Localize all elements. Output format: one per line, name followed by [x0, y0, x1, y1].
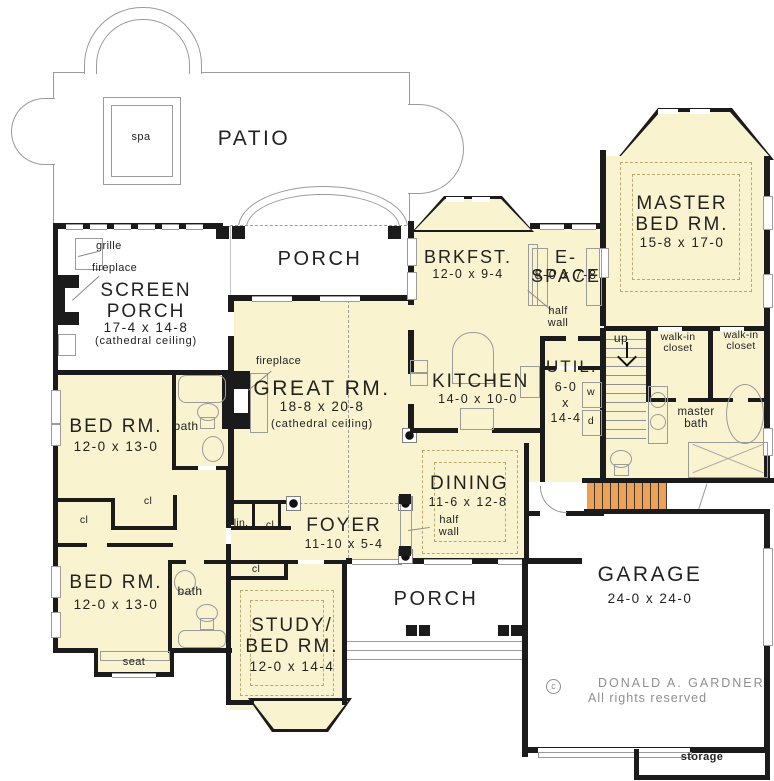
window — [763, 196, 773, 230]
tub — [178, 375, 226, 403]
wall — [173, 495, 177, 530]
kitchen-sink — [460, 408, 494, 430]
garage-floor — [524, 513, 770, 751]
front-door — [352, 559, 402, 565]
room-label-porch-upper: PORCH — [272, 249, 368, 271]
room-label-master-bed: MASTER BED RM. — [628, 194, 736, 235]
floor-plan: spa PATIO — [0, 0, 774, 781]
copyright-line2: All rights reserved — [588, 692, 738, 706]
sink — [650, 414, 666, 430]
label-fireplace-great: fireplace — [256, 356, 326, 368]
window — [498, 559, 522, 565]
label-grille: grille — [96, 241, 142, 253]
wall — [540, 338, 545, 482]
patio-arch-right — [408, 104, 464, 194]
basement-stairs — [587, 482, 667, 511]
door-opening — [198, 466, 216, 470]
window — [540, 224, 564, 230]
room-label-garage: GARAGE — [588, 564, 712, 587]
window — [407, 272, 417, 300]
wall — [584, 509, 770, 514]
porch-column — [232, 226, 245, 239]
window — [51, 612, 61, 638]
bay-window — [690, 109, 710, 114]
room-dims-foyer: 11-10 x 5-4 — [300, 538, 388, 552]
room-note-screen-porch: (cathedral ceiling) — [76, 336, 216, 348]
half-wall-cap — [399, 546, 411, 556]
room-label-porch-lower: PORCH — [388, 589, 484, 611]
screen-opening — [162, 224, 179, 230]
tub — [178, 630, 226, 648]
room-dims-kitchen: 14-0 x 10-0 — [432, 393, 524, 407]
room-dims-garage: 24-0 x 24-0 — [590, 592, 710, 607]
bay-window — [658, 109, 678, 114]
room-label-dining: DINING — [430, 474, 506, 495]
wall — [231, 500, 291, 504]
french-door — [320, 296, 360, 302]
brkfst-bay-fill — [415, 199, 531, 230]
label-bath-upper: bath — [166, 420, 206, 433]
wall — [522, 563, 528, 757]
wall — [168, 648, 232, 653]
room-dims-bed-rm-lower: 12-0 x 13-0 — [60, 598, 172, 613]
porch-column — [388, 226, 401, 239]
toilet-tank — [614, 464, 629, 476]
room-dims-util: 6-0 x 14-4 — [548, 380, 584, 427]
label-lin: lin. — [227, 518, 255, 529]
screen-opening — [114, 224, 131, 230]
wall — [228, 700, 254, 705]
label-up: up — [608, 332, 634, 345]
wall — [53, 648, 98, 653]
wall — [344, 700, 347, 705]
garage-door — [538, 752, 692, 758]
label-cl-4: cl — [244, 564, 268, 575]
room-dims-master-bed: 15-8 x 17-0 — [630, 236, 734, 251]
sink — [202, 436, 224, 462]
bay-window — [446, 197, 464, 202]
label-cl-1: cl — [72, 515, 96, 526]
wall — [410, 428, 458, 433]
window — [51, 566, 61, 598]
room-label-util: UTIL. — [546, 358, 594, 376]
wall — [111, 526, 177, 530]
toilet-tank — [200, 618, 214, 630]
spa-label: spa — [111, 132, 171, 144]
french-door — [252, 296, 292, 302]
wall — [524, 443, 529, 563]
label-dryer: d — [584, 416, 598, 427]
porch-column — [498, 625, 509, 636]
porch-column — [511, 625, 522, 636]
door-opening — [228, 312, 234, 336]
room-note-great-rm: (cathedral ceiling) — [262, 419, 382, 431]
window — [763, 274, 773, 308]
label-bath-lower: bath — [170, 585, 210, 598]
room-dims-bed-rm-upper: 12-0 x 13-0 — [60, 440, 172, 455]
porch-lower-step2 — [346, 650, 524, 660]
room-dims-brkfst: 12-0 x 9-4 — [422, 268, 514, 282]
porch-column — [406, 625, 417, 636]
room-label-screen-porch: SCREEN PORCH — [84, 281, 208, 322]
room-label-bed-rm-lower: BED RM. — [62, 573, 170, 594]
room-label-kitchen: KITCHEN — [432, 372, 524, 393]
room-dims-espace: 8-0 x 7-8 — [528, 269, 604, 283]
room-label-study: STUDY/ BED RM. — [240, 616, 344, 657]
study-bay-fill — [252, 701, 348, 729]
label-storage: storage — [672, 752, 732, 764]
label-seat: seat — [104, 657, 164, 669]
room-label-walk-in-closet-1: walk-in closet — [648, 332, 708, 355]
room-label-great-rm: GREAT RM. — [250, 378, 394, 401]
half-wall-cap — [399, 494, 411, 504]
window — [763, 548, 773, 646]
wall — [57, 498, 115, 502]
wall — [57, 543, 87, 547]
wall — [688, 398, 712, 402]
window — [424, 559, 472, 565]
room-dims-dining: 11-6 x 12-8 — [428, 496, 508, 510]
window — [572, 224, 596, 230]
bay-window — [472, 197, 490, 202]
porch-column — [419, 625, 430, 636]
wall — [634, 775, 770, 780]
patio-label: PATIO — [208, 128, 300, 151]
label-cl-3: cl — [258, 520, 282, 531]
tub — [726, 384, 764, 444]
master-bay-fill — [620, 112, 770, 157]
wall — [540, 336, 566, 341]
room-label-master-bath: master bath — [666, 406, 726, 431]
label-half-wall-espace: half wall — [538, 306, 578, 330]
door-opening — [298, 560, 324, 564]
label-washer: w — [584, 387, 598, 398]
room-dims-great-rm: 18-8 x 20-8 — [260, 400, 384, 415]
column — [286, 496, 301, 511]
wall — [284, 562, 288, 580]
room-dims-study: 12-0 x 14-4 — [238, 660, 346, 675]
screen-opening — [66, 224, 83, 230]
screen-opening — [90, 224, 107, 230]
wall — [107, 543, 173, 547]
copyright-symbol: c — [546, 679, 561, 694]
wall — [582, 478, 774, 483]
window — [112, 673, 156, 678]
wall — [230, 576, 286, 580]
room-label-brkfst: BRKFST. — [424, 248, 512, 267]
patio-arch-left — [11, 98, 55, 165]
label-cl-2: cl — [136, 496, 160, 507]
stair-landing-right — [667, 482, 765, 512]
room-label-walk-in-closet-2: walk-in closet — [712, 330, 770, 353]
screen-opening — [138, 224, 155, 230]
window — [51, 390, 61, 424]
firebox — [234, 389, 248, 413]
room-dims-screen-porch: 17-4 x 14-8 — [82, 321, 210, 336]
porch-column — [216, 226, 229, 239]
door-opening — [226, 528, 231, 544]
label-fireplace-screen: fireplace — [92, 263, 156, 275]
bench — [58, 334, 76, 356]
wall — [492, 428, 540, 433]
screen-opening — [186, 224, 203, 230]
label-half-wall-dining: half wall — [428, 515, 470, 539]
copyright-line1: DONALD A. GARDNER — [598, 677, 768, 691]
sink — [650, 392, 666, 408]
wall — [168, 560, 186, 564]
wall-oven — [410, 372, 428, 386]
room-label-foyer: FOYER — [300, 516, 388, 537]
wall — [204, 560, 230, 564]
room-label-bed-rm-upper: BED RM. — [62, 417, 170, 438]
wall — [765, 749, 770, 780]
window — [407, 238, 417, 266]
